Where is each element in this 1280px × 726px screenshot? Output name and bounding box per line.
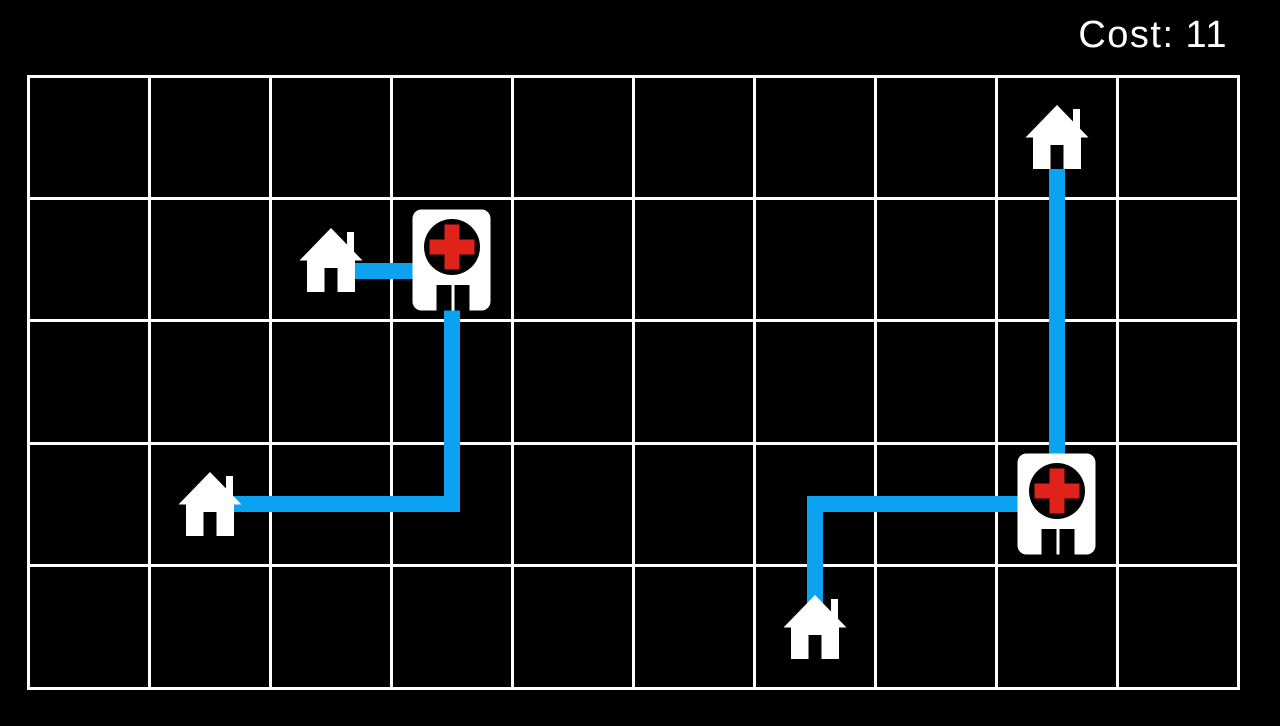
cost-label: Cost: xyxy=(1078,14,1174,56)
hospital-icon xyxy=(412,209,491,311)
hospital-1[interactable] xyxy=(412,209,491,311)
house-4[interactable] xyxy=(1025,104,1089,170)
hospital-door-right xyxy=(455,285,470,311)
red-cross-icon xyxy=(1050,469,1065,514)
house-door xyxy=(808,635,821,659)
house-icon xyxy=(1025,104,1089,170)
cost-display: Cost:11 xyxy=(1078,16,1228,54)
house-2[interactable] xyxy=(178,471,242,537)
cost-value: 11 xyxy=(1186,14,1228,56)
house-door xyxy=(1050,145,1063,169)
house-icon xyxy=(178,471,242,537)
house-icon xyxy=(299,227,363,293)
house-icon xyxy=(783,594,847,660)
house-door xyxy=(203,512,216,536)
house-3[interactable] xyxy=(783,594,847,660)
hospital-door-right xyxy=(1060,529,1075,555)
hospital-icon xyxy=(1017,453,1096,555)
buildings-layer xyxy=(0,0,1280,726)
hospital-door-left xyxy=(1042,529,1057,555)
game-board: Cost:11 xyxy=(0,0,1280,726)
red-cross-icon xyxy=(445,224,460,269)
hospital-door-left xyxy=(437,285,452,311)
house-1[interactable] xyxy=(299,227,363,293)
hospital-2[interactable] xyxy=(1017,453,1096,555)
house-door xyxy=(324,268,337,292)
